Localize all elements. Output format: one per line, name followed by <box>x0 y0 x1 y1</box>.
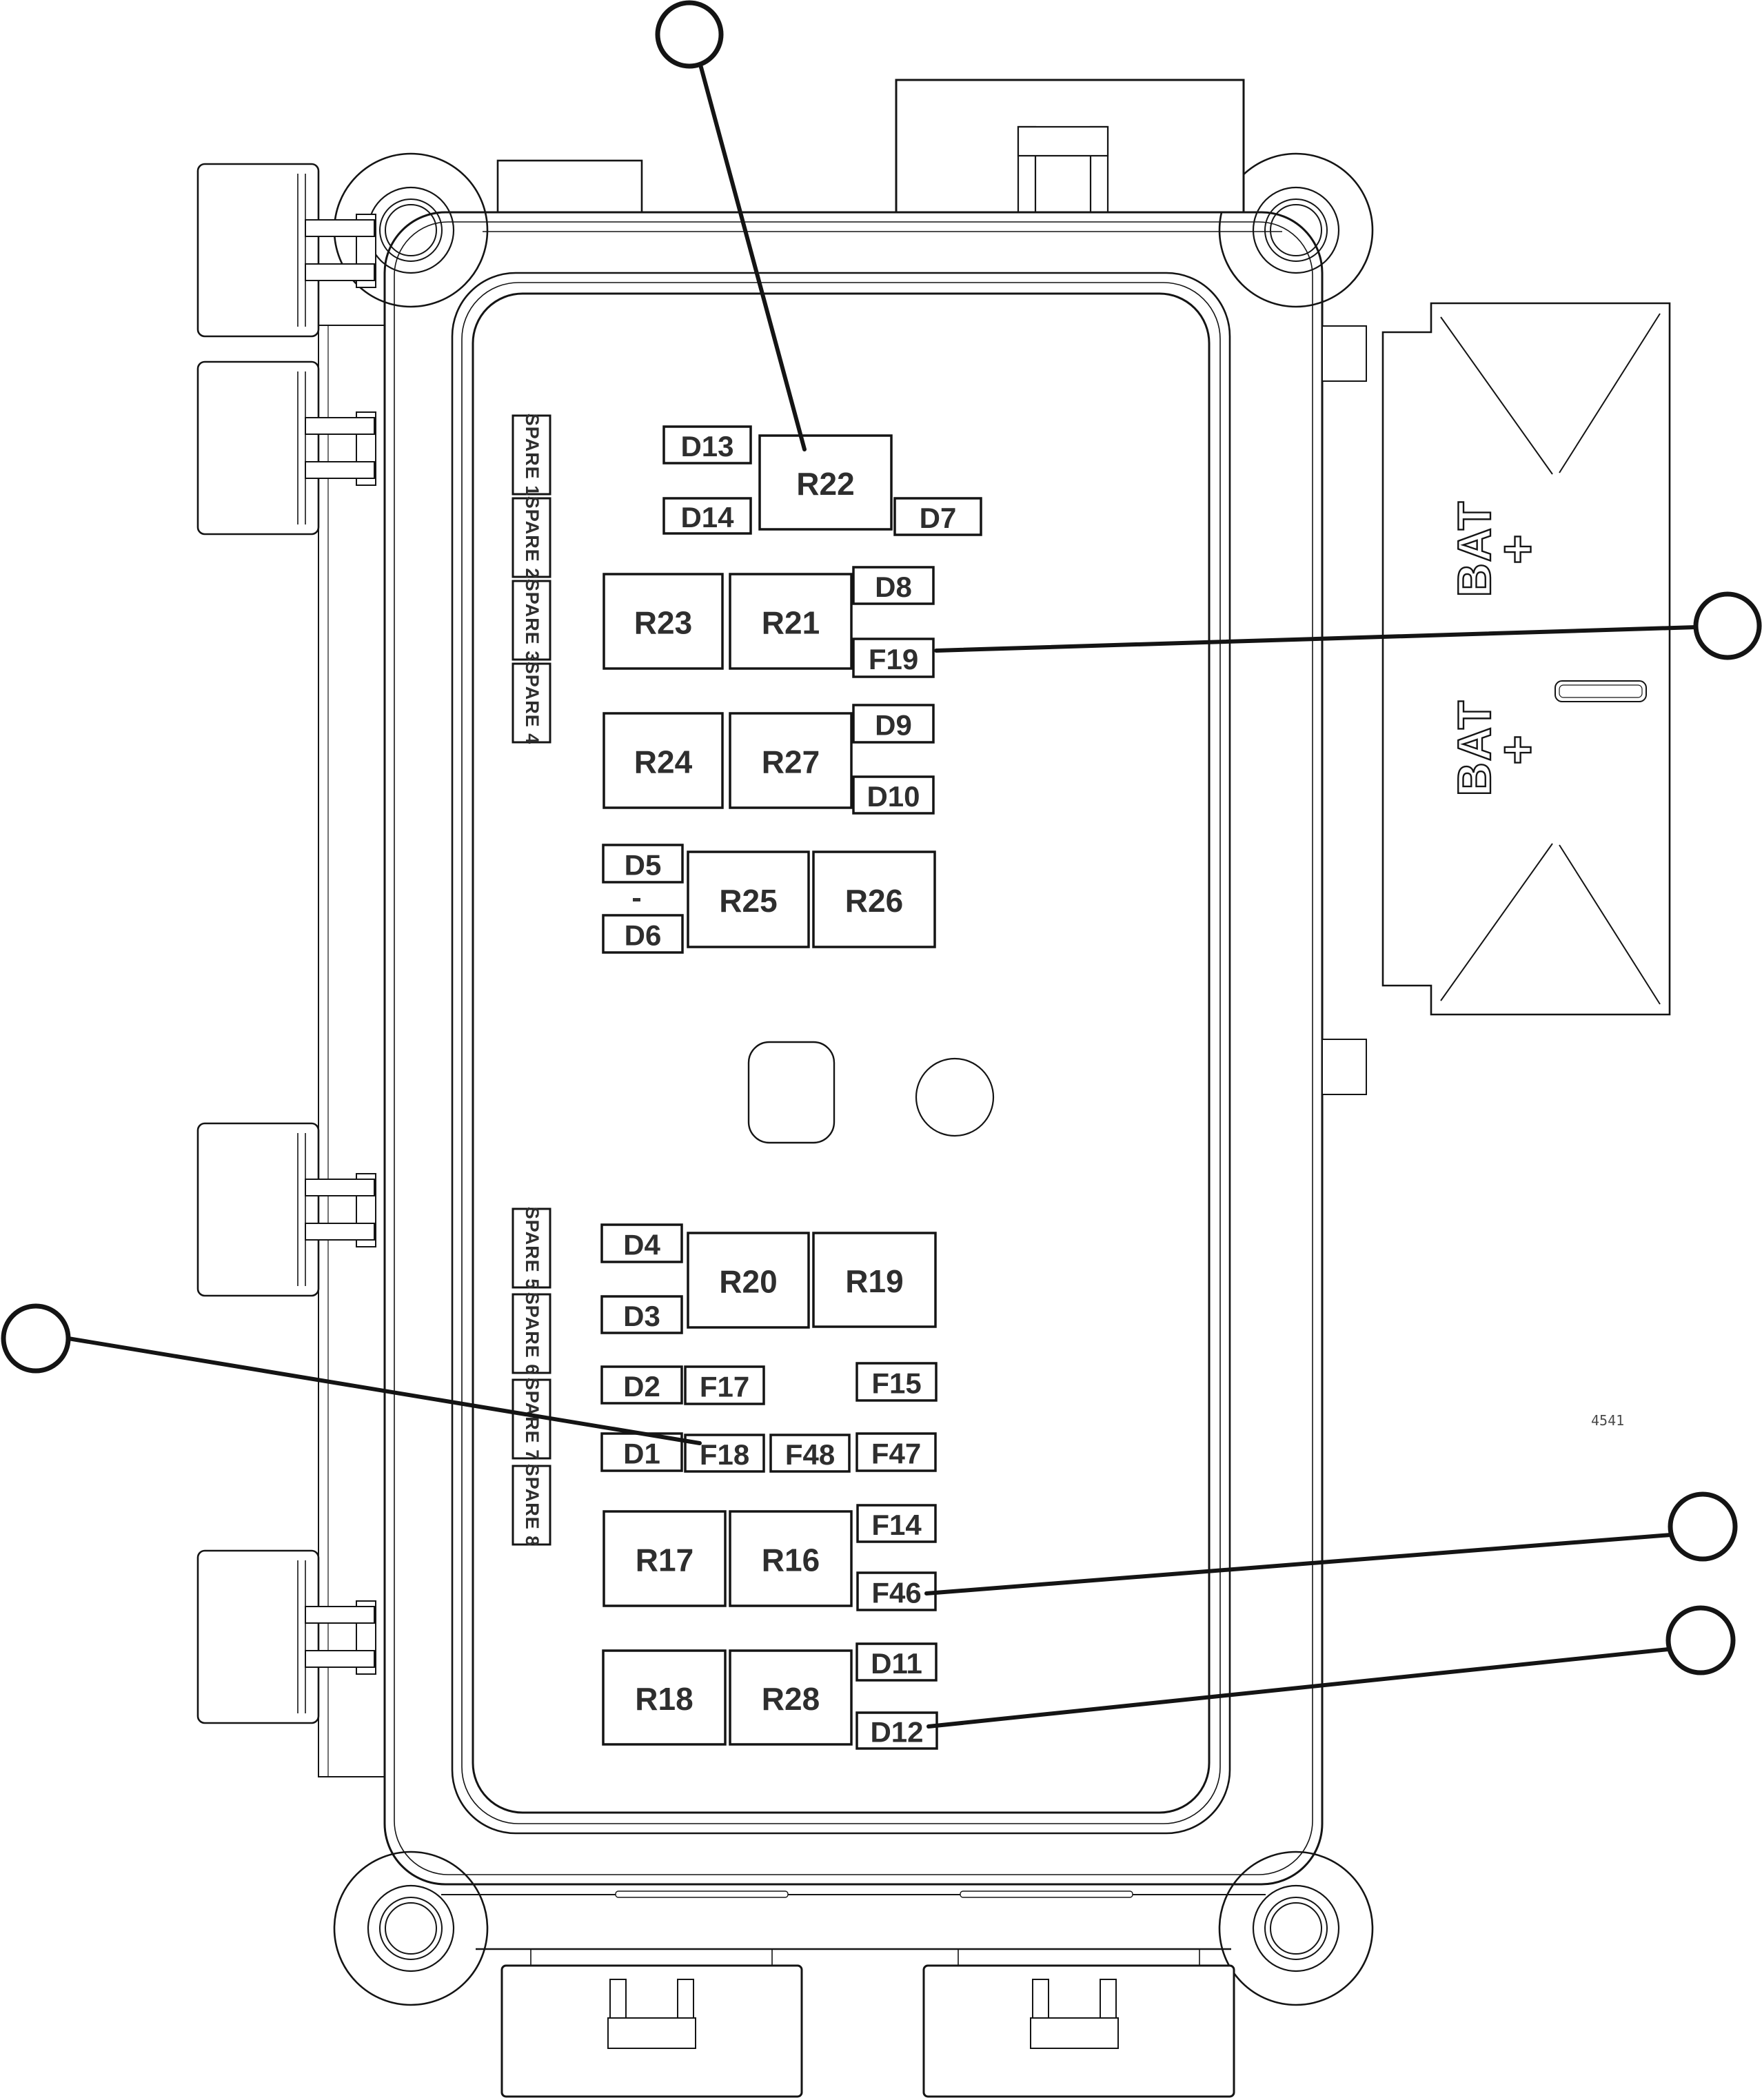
bat-lower-plus: + <box>1489 735 1546 764</box>
component-label: R22 <box>796 466 854 502</box>
component-F15: F15 <box>857 1363 936 1400</box>
component-D14: D14 <box>664 498 751 533</box>
component-label: F46 <box>871 1577 921 1609</box>
component-D3: D3 <box>602 1296 682 1333</box>
top-connector <box>896 80 1244 212</box>
component-label: D14 <box>680 501 734 533</box>
component-F14: F14 <box>858 1505 935 1542</box>
component-label: D9 <box>875 709 912 742</box>
component-label: D2 <box>623 1370 660 1403</box>
component-label: R19 <box>845 1263 903 1299</box>
callout-d12 <box>929 1608 1733 1726</box>
component-label: R26 <box>845 883 903 919</box>
spare-slot-label: SPARE 4 <box>522 662 543 745</box>
component-D10: D10 <box>853 777 933 813</box>
component-D2: D2 <box>602 1367 682 1403</box>
callout-circle <box>1670 1494 1735 1559</box>
bottom-band <box>441 1891 1266 1966</box>
component-D4: D4 <box>602 1225 682 1262</box>
spare-slot-label: SPARE 1 <box>522 414 543 497</box>
callout-leader-line <box>929 1649 1668 1726</box>
component-R25: R25 <box>688 852 809 947</box>
spare-slot-label: SPARE 8 <box>522 1464 543 1547</box>
bat-upper-plus: + <box>1489 534 1546 564</box>
battery-cover-slot <box>1555 681 1646 702</box>
component-D9: D9 <box>853 705 933 742</box>
component-D13: D13 <box>664 427 751 463</box>
component-label: F14 <box>871 1509 922 1541</box>
top-plate-connector <box>498 161 642 212</box>
spare-slot-label: SPARE 5 <box>522 1207 543 1290</box>
component-F47: F47 <box>857 1434 935 1471</box>
component-label: R24 <box>634 744 693 780</box>
callout-leader-line <box>926 1535 1671 1593</box>
callout-circle <box>1696 594 1759 657</box>
spare-slot: SPARE 6 <box>513 1292 550 1376</box>
component-R19: R19 <box>813 1233 935 1327</box>
component-F17: F17 <box>685 1367 764 1404</box>
spare-slot-label: SPARE 2 <box>522 496 543 580</box>
fuse-box-diagram: BAT + BAT + SPARE 1SPARE 2SPARE 3SPARE 4… <box>0 0 1762 2100</box>
component-R20: R20 <box>688 1233 809 1327</box>
spare-slot: SPARE 8 <box>513 1464 550 1547</box>
right-bracket-tab-upper <box>1322 326 1366 381</box>
component-label: R28 <box>762 1681 820 1717</box>
component-D6: D6 <box>603 915 682 952</box>
bottom-connector-right <box>924 1966 1234 2097</box>
component-R22: R22 <box>760 436 891 529</box>
keyway-circle <box>916 1059 993 1136</box>
spare-slot-label: SPARE 7 <box>522 1378 543 1461</box>
component-F19: F19 <box>853 639 933 677</box>
tray-rim-mid <box>462 283 1220 1824</box>
tray-rim-outer <box>452 273 1230 1833</box>
component-D11: D11 <box>857 1644 936 1680</box>
spare-slot: SPARE 5 <box>513 1207 550 1290</box>
component-label: F47 <box>871 1438 921 1470</box>
component-R23: R23 <box>604 574 722 669</box>
battery-cover: BAT + BAT + <box>1383 303 1670 1015</box>
component-D8: D8 <box>853 567 933 604</box>
component-label: F48 <box>785 1438 835 1471</box>
component-D7: D7 <box>895 498 981 535</box>
spare-slot: SPARE 3 <box>513 579 550 662</box>
callout-circle <box>1668 1608 1733 1673</box>
callout-leader-line <box>700 65 804 449</box>
component-D5: D5 <box>603 845 682 882</box>
keyway-square <box>749 1042 834 1143</box>
tray-rim-inner <box>473 294 1209 1813</box>
component-label: R21 <box>762 605 820 641</box>
component-label: D13 <box>680 430 733 462</box>
right-bracket-tab-lower <box>1322 1039 1366 1094</box>
component-label: F19 <box>869 643 918 675</box>
component-R21: R21 <box>730 574 851 669</box>
component-F18: F18 <box>685 1435 764 1471</box>
component-label: D11 <box>871 1647 922 1680</box>
component-label: R23 <box>634 605 692 641</box>
spare-slot: SPARE 2 <box>513 496 550 580</box>
component-D12: D12 <box>857 1713 937 1749</box>
component-R28: R28 <box>730 1651 851 1744</box>
component-R18: R18 <box>603 1651 725 1744</box>
component-R24: R24 <box>604 713 722 808</box>
component-label: D6 <box>625 919 662 952</box>
spare-slot-label: SPARE 3 <box>522 579 543 662</box>
component-label: R27 <box>762 744 820 780</box>
bottom-connector-left <box>502 1966 802 2097</box>
callout-circle <box>3 1306 68 1371</box>
component-R27: R27 <box>730 713 851 808</box>
print-artifact <box>633 898 640 901</box>
part-number-text: 4541 <box>1591 1412 1624 1429</box>
spare-slot-layer: SPARE 1SPARE 2SPARE 3SPARE 4SPARE 5SPARE… <box>513 414 550 1547</box>
component-label: D12 <box>870 1716 923 1749</box>
spare-slot: SPARE 1 <box>513 414 550 497</box>
component-label: D5 <box>625 849 662 881</box>
component-R16: R16 <box>730 1511 851 1606</box>
component-label: F15 <box>871 1367 921 1400</box>
component-label: F17 <box>700 1371 749 1403</box>
component-label: R18 <box>635 1681 693 1717</box>
component-label: D8 <box>875 571 912 603</box>
callout-f46 <box>926 1494 1735 1593</box>
callout-circle <box>658 3 721 66</box>
component-label: R16 <box>762 1542 820 1578</box>
component-R26: R26 <box>813 852 935 947</box>
component-label: D10 <box>867 780 920 813</box>
component-layer: R22R23R21R24R27R25R26R20R19R17R16R18R28D… <box>602 427 981 1749</box>
component-label: R17 <box>636 1542 693 1578</box>
component-label: R20 <box>719 1264 777 1300</box>
component-F46: F46 <box>858 1573 935 1610</box>
component-label: D1 <box>623 1438 660 1470</box>
component-label: F18 <box>700 1438 749 1471</box>
spare-slot: SPARE 4 <box>513 662 550 745</box>
component-R17: R17 <box>604 1511 725 1606</box>
component-label: R25 <box>719 883 777 919</box>
component-label: D4 <box>623 1229 660 1261</box>
component-label: D7 <box>920 502 957 534</box>
component-label: D3 <box>623 1300 660 1332</box>
component-F48: F48 <box>771 1435 849 1471</box>
callout-r22 <box>658 3 804 449</box>
spare-slot-label: SPARE 6 <box>522 1292 543 1376</box>
